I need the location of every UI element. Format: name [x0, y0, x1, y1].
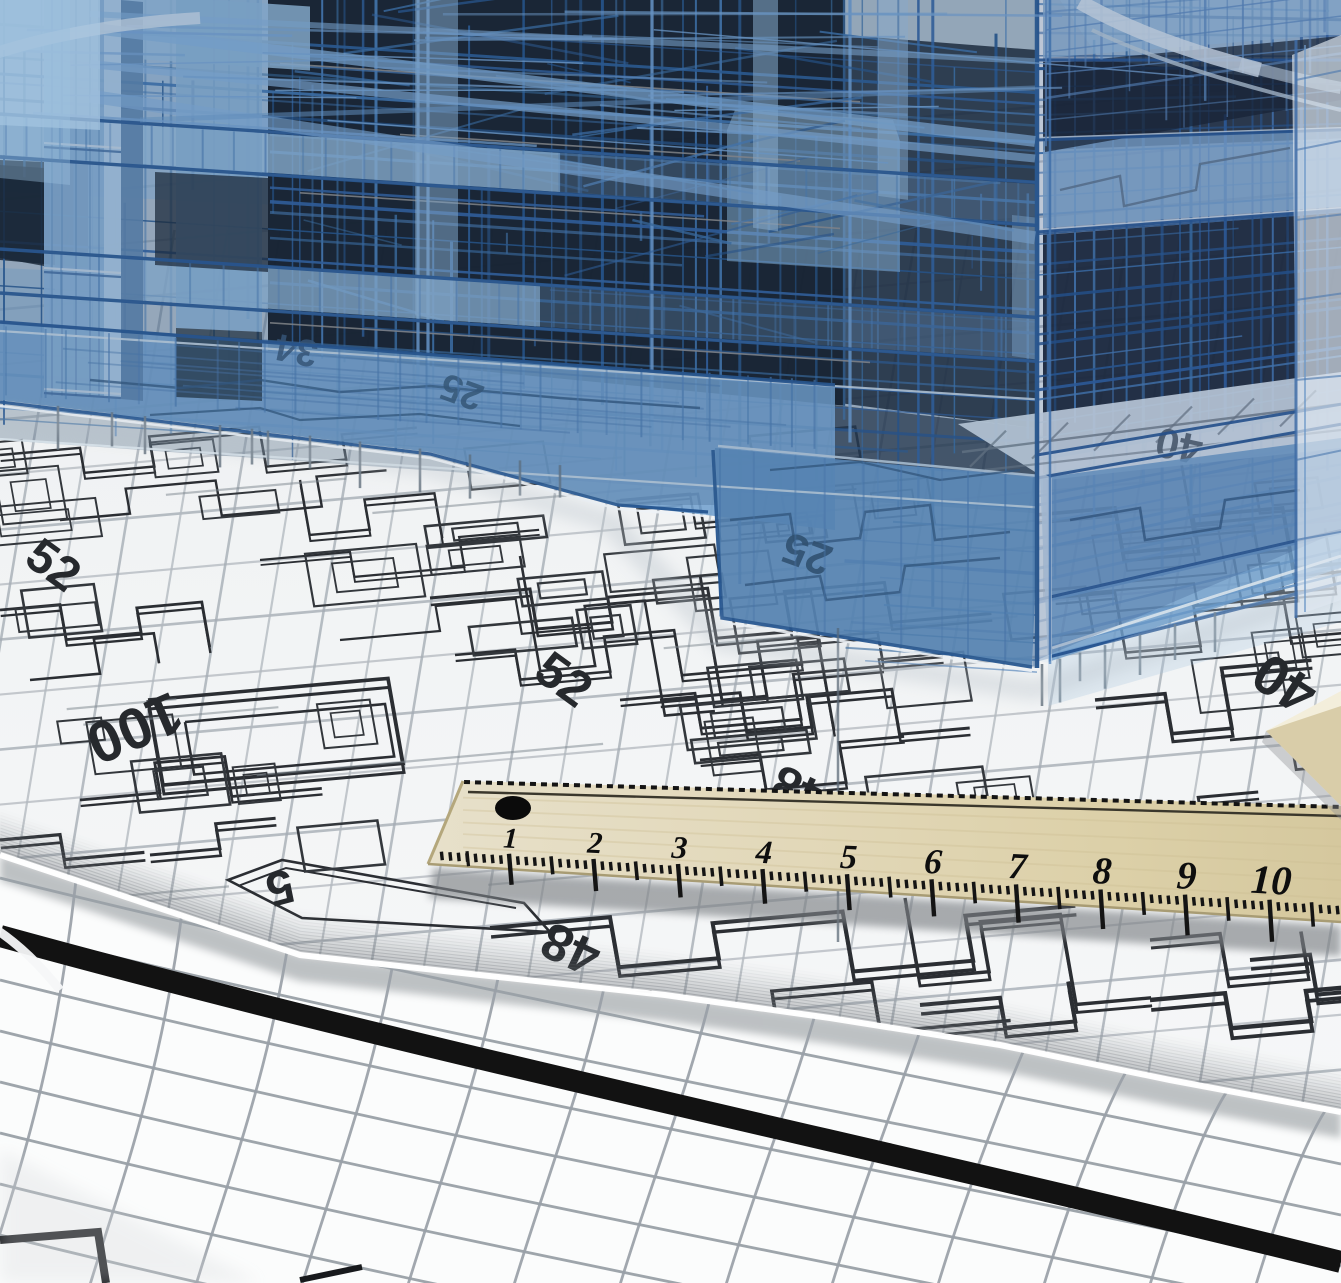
svg-text:5: 5: [839, 838, 858, 877]
svg-text:1: 1: [502, 822, 518, 855]
svg-text:2: 2: [586, 825, 604, 860]
svg-text:8: 8: [1091, 850, 1112, 893]
svg-text:9: 9: [1176, 853, 1198, 898]
svg-text:6: 6: [923, 841, 943, 882]
svg-text:4: 4: [754, 835, 773, 872]
svg-text:3: 3: [670, 830, 689, 866]
svg-text:10: 10: [1250, 857, 1293, 904]
